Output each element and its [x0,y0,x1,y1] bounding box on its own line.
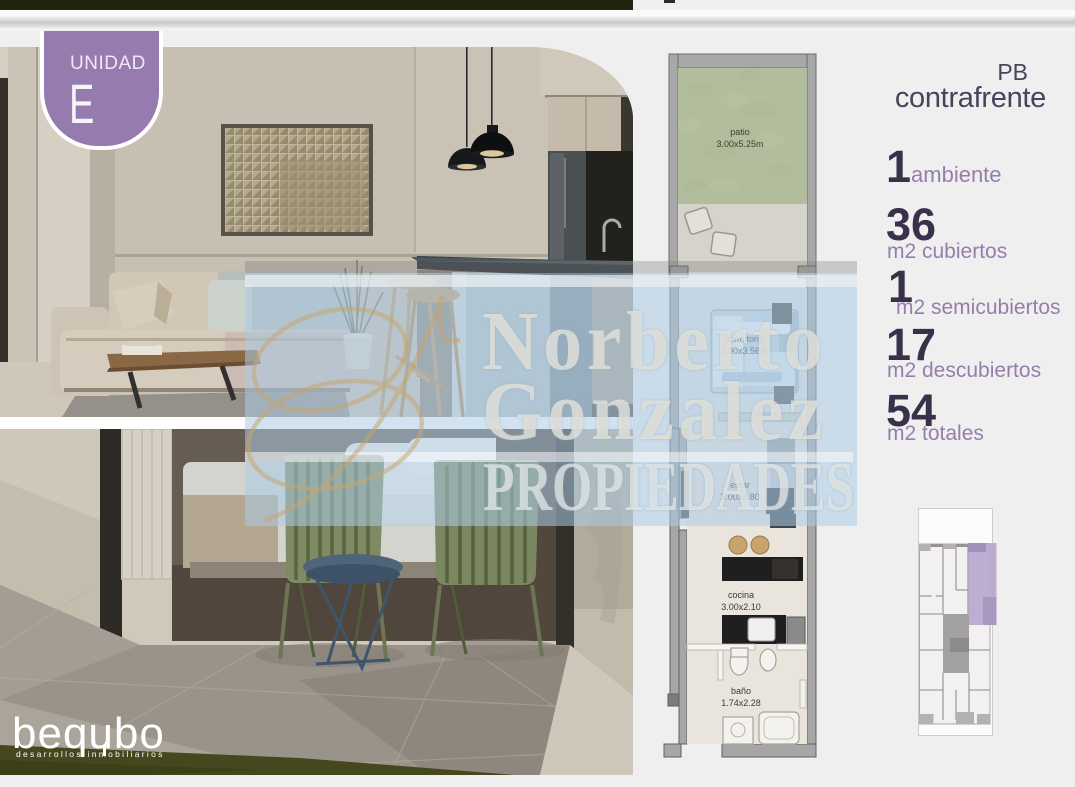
svg-text:3.00x5.25m: 3.00x5.25m [716,139,763,149]
svg-text:cocina: cocina [728,590,754,600]
svg-text:1.74x2.28: 1.74x2.28 [721,698,761,708]
svg-text:patio: patio [730,127,750,137]
svg-text:baño: baño [731,686,751,696]
svg-text:3.00x2.10: 3.00x2.10 [721,602,761,612]
